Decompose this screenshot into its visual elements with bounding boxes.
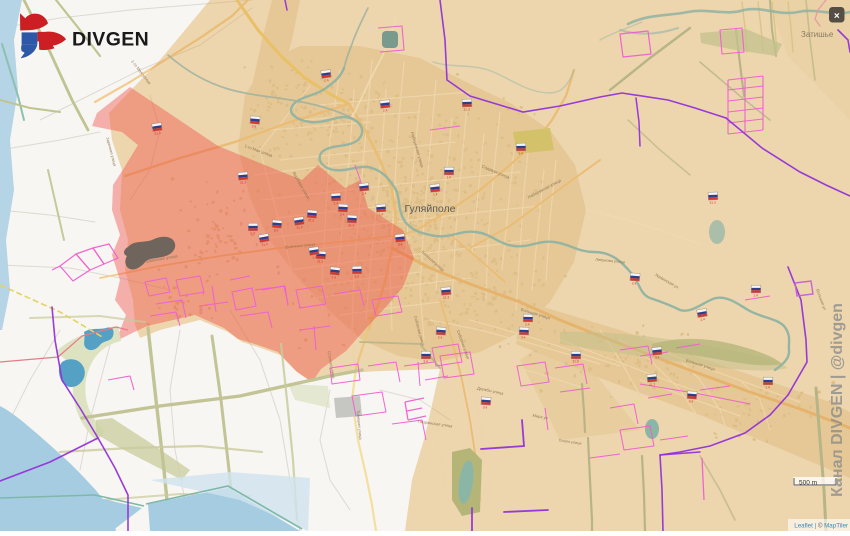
svg-text:31.3: 31.3 [240,180,247,185]
svg-text:2.4: 2.4 [340,212,345,216]
svg-text:31.3: 31.3 [443,295,450,300]
svg-text:3.4: 3.4 [483,405,488,409]
svg-text:Leaflet | © MapTiler: Leaflet | © MapTiler [794,523,848,530]
svg-text:31.3: 31.3 [308,218,315,223]
svg-text:2.4: 2.4 [334,201,339,205]
svg-text:2.4: 2.4 [379,212,384,216]
svg-text:31.3: 31.3 [464,107,471,111]
svg-text:2.4: 2.4 [525,322,530,326]
svg-text:3.4: 3.4 [423,360,428,364]
svg-text:31.3: 31.3 [317,259,324,263]
svg-text:2.4: 2.4 [331,275,336,279]
svg-text:DIVGEN: DIVGEN [72,29,149,51]
svg-text:3.4: 3.4 [252,124,257,128]
svg-text:Затишье: Затишье [801,30,834,39]
svg-text:3.4: 3.4 [655,355,660,359]
svg-text:1.4: 1.4 [753,294,758,298]
svg-text:3.4: 3.4 [354,274,359,278]
svg-text:2.4: 2.4 [324,78,329,83]
svg-text:31.3: 31.3 [572,360,578,364]
svg-text:500 m: 500 m [799,480,817,487]
svg-text:2.4: 2.4 [438,335,443,339]
svg-text:2.4: 2.4 [362,191,367,195]
svg-text:Гуляйполе: Гуляйполе [405,203,456,215]
svg-text:31.3: 31.3 [348,223,355,227]
svg-text:2.4: 2.4 [632,281,637,285]
svg-text:3.4: 3.4 [689,399,694,403]
svg-text:3.4: 3.4 [274,228,279,232]
svg-text:3.4: 3.4 [521,335,526,339]
svg-text:1.4: 1.4 [765,386,770,390]
svg-text:1.4: 1.4 [446,176,451,180]
svg-text:1.4: 1.4 [312,255,317,260]
svg-text:1.4: 1.4 [433,192,438,196]
svg-text:2.4: 2.4 [383,108,388,112]
svg-text:×: × [834,11,840,22]
svg-text:31.3: 31.3 [649,382,656,387]
svg-text:3.4: 3.4 [398,242,403,246]
svg-text:31.3: 31.3 [710,200,717,204]
svg-text:1.4: 1.4 [518,151,523,155]
svg-text:Канал DIVGEN | @divgen: Канал DIVGEN | @divgen [829,303,846,497]
svg-text:2.4: 2.4 [250,232,255,236]
